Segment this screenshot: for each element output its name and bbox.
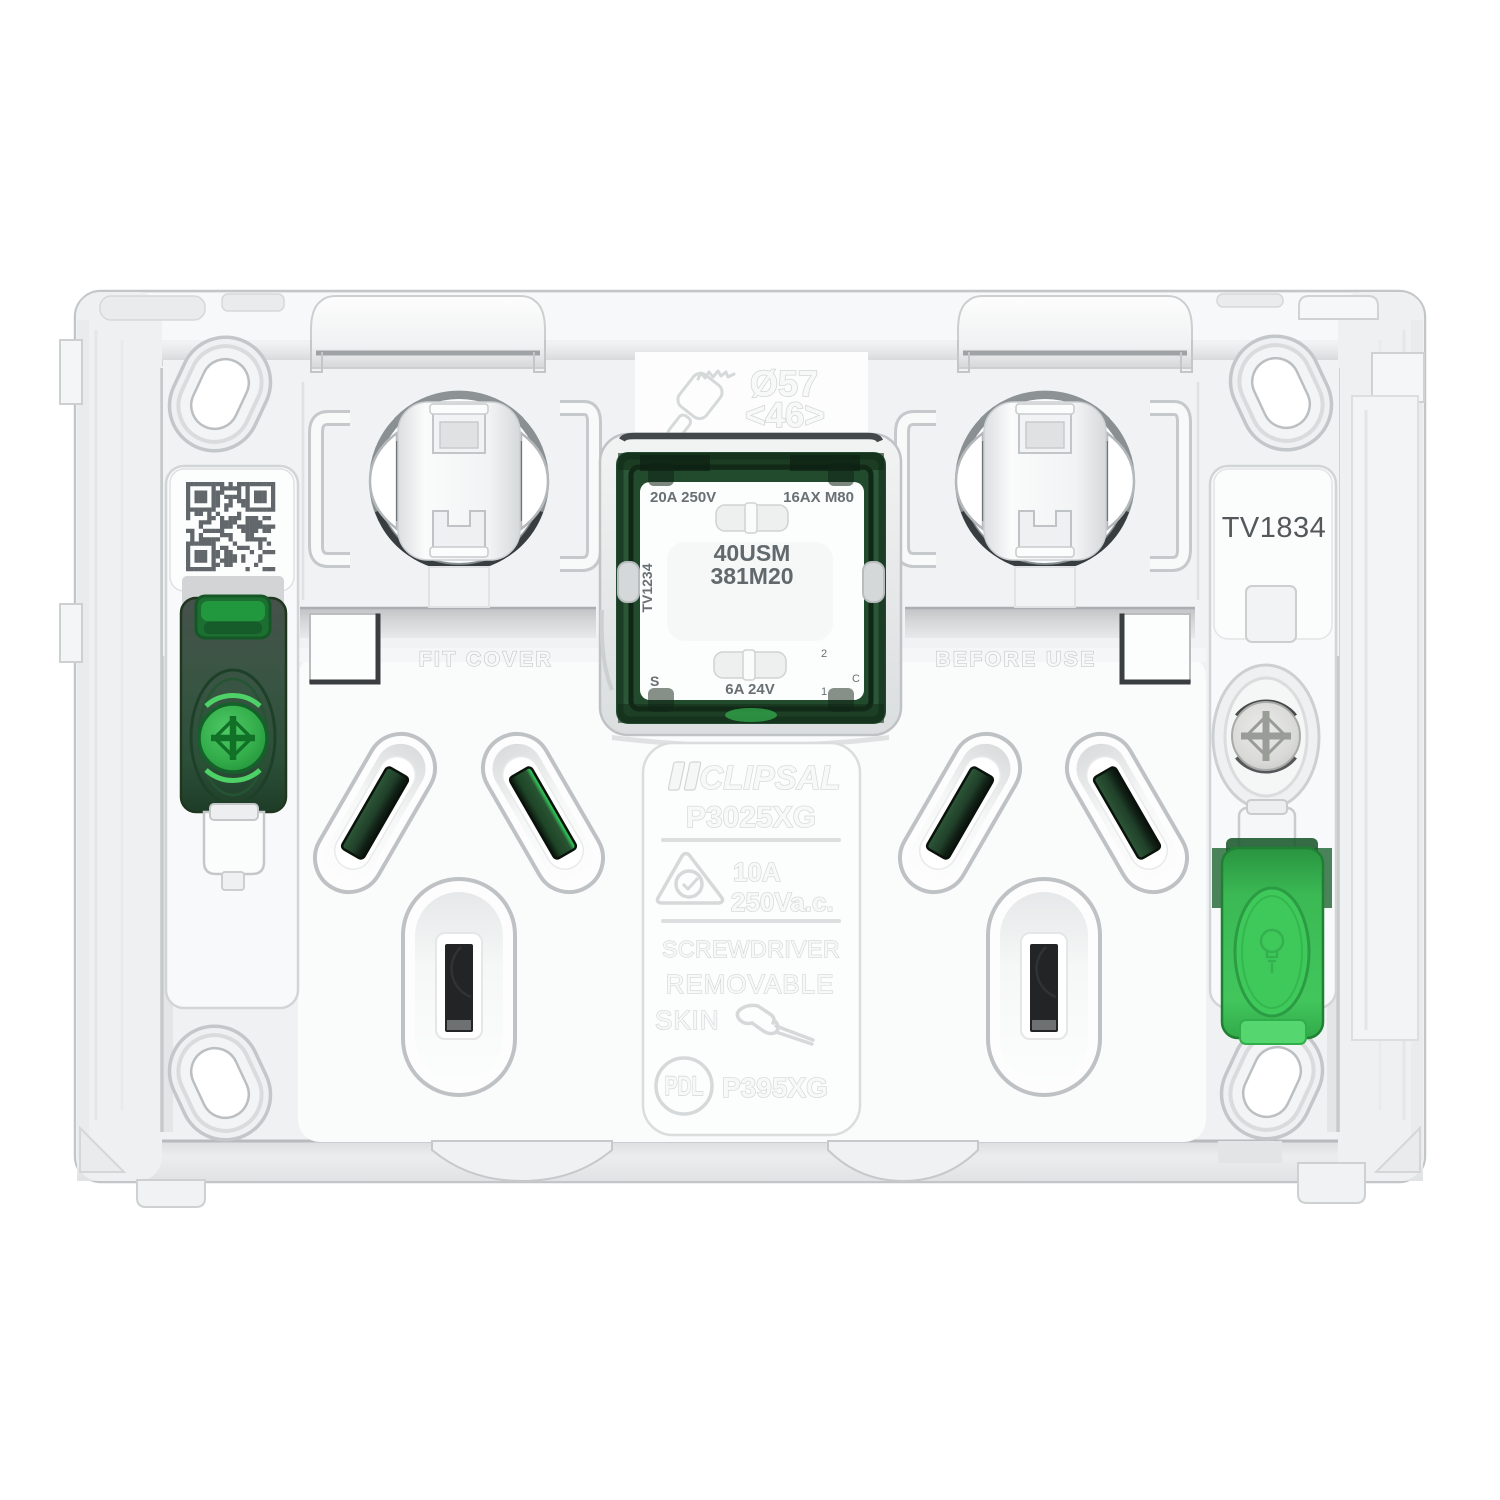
svg-text:BEFORE USE: BEFORE USE bbox=[935, 648, 1097, 671]
svg-text:381M20: 381M20 bbox=[710, 563, 793, 589]
svg-text:CLIPSAL: CLIPSAL bbox=[699, 759, 840, 796]
svg-text:250Va.c.: 250Va.c. bbox=[731, 887, 834, 917]
svg-text:PDL: PDL bbox=[665, 1071, 704, 1101]
svg-text:20A 250V: 20A 250V bbox=[650, 489, 716, 506]
svg-text:FIT COVER: FIT COVER bbox=[419, 648, 554, 671]
svg-text:1: 1 bbox=[821, 686, 827, 698]
svg-text:<46>: <46> bbox=[745, 396, 825, 435]
svg-text:6A 24V: 6A 24V bbox=[725, 681, 774, 698]
svg-text:10A: 10A bbox=[733, 857, 781, 887]
svg-text:REMOVABLE: REMOVABLE bbox=[666, 969, 835, 999]
svg-text:TV1234: TV1234 bbox=[639, 563, 655, 612]
svg-text:C: C bbox=[852, 673, 860, 685]
svg-text:2: 2 bbox=[821, 648, 827, 660]
svg-text:16AX M80: 16AX M80 bbox=[783, 489, 854, 506]
svg-text:TV1834: TV1834 bbox=[1222, 512, 1327, 544]
svg-text:S: S bbox=[650, 673, 659, 689]
svg-text:SCREWDRIVER: SCREWDRIVER bbox=[662, 936, 840, 962]
svg-text:P395XG: P395XG bbox=[722, 1072, 828, 1103]
svg-text:SKIN: SKIN bbox=[655, 1005, 720, 1035]
svg-text:P3025XG: P3025XG bbox=[686, 801, 816, 834]
